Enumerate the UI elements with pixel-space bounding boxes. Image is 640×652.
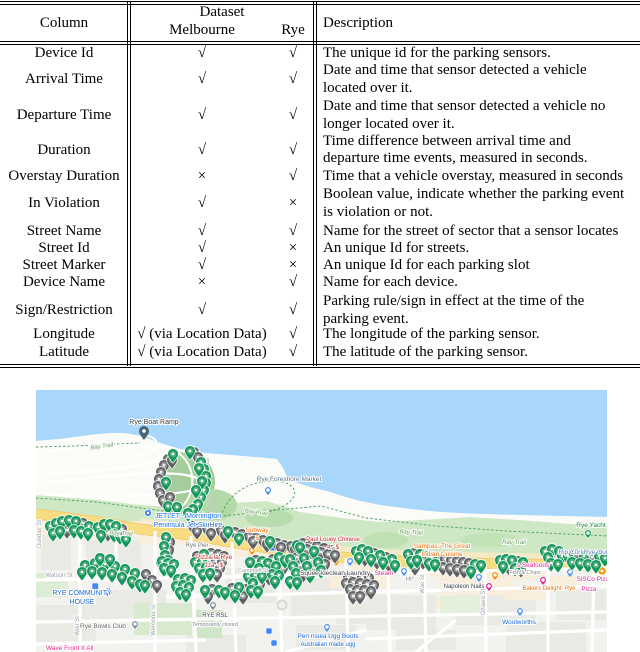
svg-text:RYE RSL: RYE RSL (202, 613, 228, 619)
svg-text:Rye Yacht: Rye Yacht (576, 522, 606, 529)
svg-text:Weroona St: Weroona St (151, 604, 157, 636)
svg-text:Rye Bowls Club: Rye Bowls Club (80, 623, 126, 630)
svg-text:Pizza la Rye: Pizza la Rye (196, 554, 233, 561)
svg-text:HOUSE: HOUSE (70, 599, 95, 606)
svg-text:Temporarily closed: Temporarily closed (192, 622, 238, 628)
svg-text:Steam: Steam (375, 570, 394, 577)
svg-text:Peninsula Jet Ski Hire: Peninsula Jet Ski Hire (154, 522, 223, 529)
svg-text:Rye Foreshore Market: Rye Foreshore Market (257, 476, 322, 483)
svg-text:Napoleon Nails: Napoleon Nails (444, 584, 485, 590)
svg-text:Woolworths: Woolworths (502, 619, 537, 626)
svg-text:Australian made ugg: Australian made ugg (300, 642, 355, 648)
svg-text:Rip Curl Rye Out: Rip Curl Rye Out (558, 549, 607, 556)
svg-text:Rye Boat Ramp: Rye Boat Ramp (129, 419, 179, 426)
svg-text:Watson St: Watson St (45, 573, 73, 579)
svg-text:SiSCo Pizz: SiSCo Pizz (576, 576, 607, 583)
svg-text:Pen nsula Ugg Boots: Pen nsula Ugg Boots (297, 633, 359, 640)
svg-text:Paul Louey Chinese: Paul Louey Chinese (306, 537, 360, 543)
svg-text:Ottawa St: Ottawa St (481, 588, 487, 615)
svg-text:HI°: HI° (406, 577, 415, 583)
svg-text:Indian Cuisine: Indian Cuisine (421, 551, 463, 558)
svg-text:Dundas St: Dundas St (37, 520, 43, 548)
svg-text:Fish & Chips: Fish & Chips (509, 570, 540, 576)
svg-text:s Seafoods: s Seafoods (517, 562, 550, 569)
svg-text:Rye Pier: Rye Pier (185, 543, 208, 549)
svg-text:Squee-kleclean Laundry: Squee-kleclean Laundry (300, 570, 371, 577)
svg-text:JETLET - Mornington: JETLET - Mornington (155, 513, 222, 520)
svg-text:4 - $: 4 - $ (327, 545, 340, 551)
svg-text:Weir St: Weir St (75, 616, 81, 636)
svg-text:Sampas: The Great: Sampas: The Great (414, 543, 471, 550)
svg-text:Wave Front It All: Wave Front It All (46, 645, 94, 652)
svg-text:Bakers Delight: Rye: Bakers Delight: Rye (522, 586, 576, 592)
svg-text:Pizza: Pizza (582, 587, 597, 593)
svg-text:zza - $: zza - $ (205, 563, 224, 569)
svg-text:RYE COMMUNITY: RYE COMMUNITY (52, 590, 112, 597)
svg-text:Wae St: Wae St (420, 574, 426, 594)
svg-text:Subway: Subway (245, 527, 269, 534)
svg-text:Campbell St: Campbell St (238, 568, 268, 574)
svg-text:Ray Trail: Ray Trail (502, 540, 526, 546)
